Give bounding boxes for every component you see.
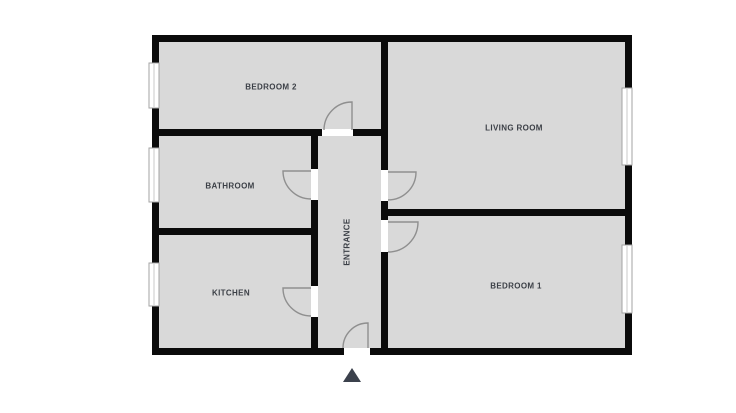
floor-area [152, 35, 632, 355]
window-bedroom2 [149, 63, 159, 108]
door-opening-entrance [344, 348, 370, 355]
wall-exterior-top [152, 35, 632, 42]
room-label-kitchen: KITCHEN [212, 289, 250, 298]
door-opening-bedroom1 [381, 220, 388, 252]
room-label-bathroom: BATHROOM [205, 182, 254, 191]
room-label-bedroom-2: BEDROOM 2 [245, 83, 297, 92]
door-opening-bedroom2 [322, 129, 353, 136]
entrance-arrow-icon [343, 368, 361, 382]
room-label-entrance: ENTRANCE [343, 218, 352, 266]
window-bedroom1 [622, 245, 632, 313]
window-kitchen [149, 263, 159, 306]
wall-livingroom-bedroom1 [381, 209, 632, 216]
window-livingroom [622, 88, 632, 165]
floor-plan-canvas: BEDROOM 2 LIVING ROOM BATHROOM KITCHEN B… [0, 0, 736, 413]
wall-bathroom-kitchen [152, 228, 318, 235]
door-opening-kitchen [311, 286, 318, 317]
door-opening-livingroom [381, 170, 388, 201]
wall-exterior-bottom [152, 348, 632, 355]
door-opening-bathroom [311, 169, 318, 200]
floor-plan-svg: BEDROOM 2 LIVING ROOM BATHROOM KITCHEN B… [0, 0, 736, 413]
wall-hall-left [311, 129, 318, 355]
room-label-living-room: LIVING ROOM [485, 124, 543, 133]
window-bathroom [149, 148, 159, 202]
room-label-bedroom-1: BEDROOM 1 [490, 282, 542, 291]
